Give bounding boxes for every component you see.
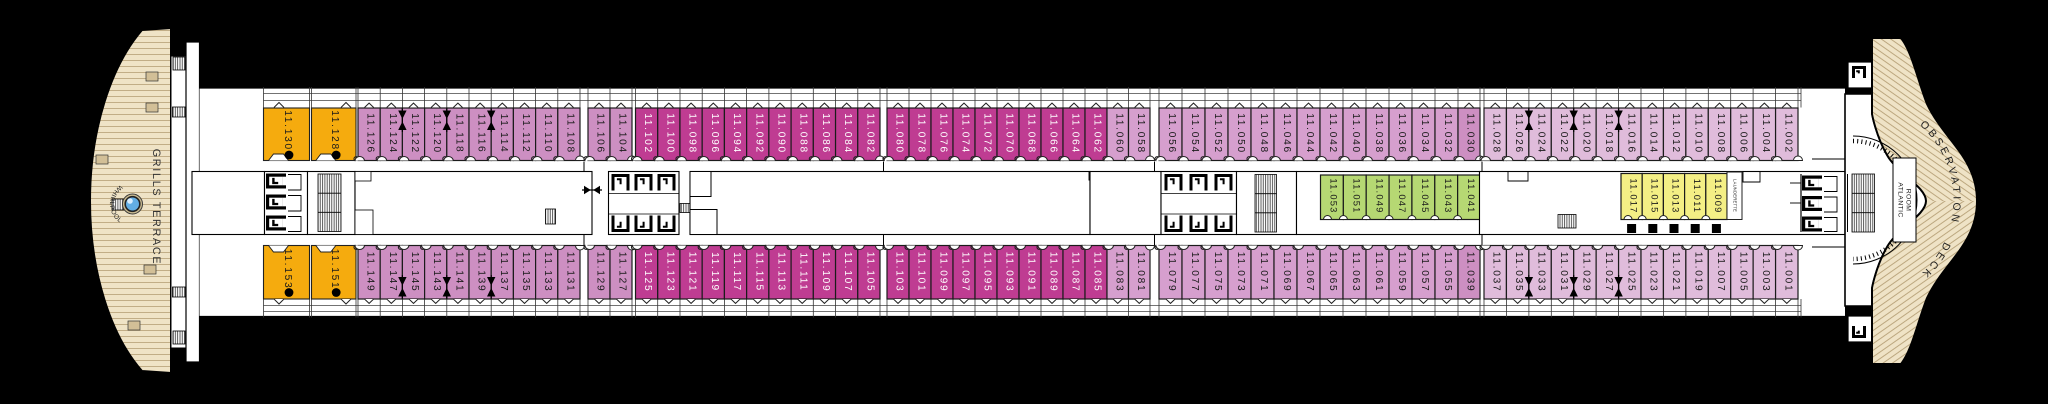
svg-text:11.104: 11.104 [617,113,628,154]
svg-text:11.099: 11.099 [938,252,949,293]
svg-text:11.010: 11.010 [1693,113,1704,154]
svg-text:11.027: 11.027 [1603,252,1614,293]
svg-text:11.056: 11.056 [1166,113,1177,154]
svg-text:11.151: 11.151 [329,249,340,290]
svg-text:11.013: 11.013 [1671,178,1682,213]
svg-text:11.128: 11.128 [329,110,340,151]
svg-text:11.043: 11.043 [1443,178,1454,213]
svg-text:11.017: 11.017 [1628,178,1639,213]
svg-text:11.129: 11.129 [595,252,606,293]
svg-text:11.036: 11.036 [1396,113,1407,154]
svg-text:11.124: 11.124 [387,113,398,154]
svg-text:11.060: 11.060 [1113,113,1124,154]
svg-text:11.123: 11.123 [664,252,675,293]
svg-text:11.020: 11.020 [1580,113,1591,154]
svg-text:11.051: 11.051 [1352,178,1363,213]
svg-text:11.054: 11.054 [1189,113,1200,154]
svg-text:11.119: 11.119 [709,252,720,292]
svg-text:11.046: 11.046 [1281,113,1292,154]
svg-text:11.118: 11.118 [453,114,464,154]
svg-text:11.047: 11.047 [1397,178,1408,213]
svg-text:11.066: 11.066 [1048,113,1059,154]
svg-text:11.103: 11.103 [894,252,905,293]
svg-text:11.127: 11.127 [617,252,628,293]
svg-text:11.110: 11.110 [542,114,553,154]
svg-text:11.088: 11.088 [798,113,809,154]
svg-text:11.032: 11.032 [1442,113,1453,154]
svg-text:11.052: 11.052 [1212,113,1223,154]
svg-text:11.031: 11.031 [1558,252,1569,293]
svg-text:11.005: 11.005 [1737,252,1748,293]
svg-text:11.048: 11.048 [1258,113,1269,154]
svg-text:11.012: 11.012 [1670,113,1681,154]
svg-text:11.064: 11.064 [1070,113,1081,154]
svg-text:11.100: 11.100 [664,113,675,154]
svg-text:11.095: 11.095 [982,252,993,293]
svg-text:11.014: 11.014 [1648,113,1659,154]
svg-text:ATLANTIC: ATLANTIC [1897,182,1904,217]
svg-text:11.091: 11.091 [1026,252,1037,293]
svg-text:11.122: 11.122 [409,113,420,154]
svg-text:11.137: 11.137 [498,252,509,293]
svg-text:11.070: 11.070 [1004,113,1015,154]
svg-text:11.040: 11.040 [1350,113,1361,154]
svg-text:11.102: 11.102 [642,113,653,154]
svg-text:11.085: 11.085 [1092,252,1103,293]
svg-text:11.076: 11.076 [938,113,949,154]
svg-text:11.116: 11.116 [476,114,487,154]
svg-text:11.068: 11.068 [1026,113,1037,154]
svg-text:11.087: 11.087 [1070,252,1081,293]
svg-text:11.126: 11.126 [365,113,376,154]
svg-text:11.112: 11.112 [520,114,531,154]
svg-text:11.072: 11.072 [982,113,993,154]
svg-text:11.081: 11.081 [1135,252,1146,293]
svg-text:11.042: 11.042 [1327,113,1338,154]
svg-text:11.025: 11.025 [1625,252,1636,293]
svg-text:11.062: 11.062 [1092,113,1103,154]
svg-text:11.019: 11.019 [1693,252,1704,293]
svg-text:11.058: 11.058 [1135,113,1146,154]
svg-text:11.015: 11.015 [1650,178,1661,213]
svg-text:11.009: 11.009 [1713,178,1724,213]
svg-text:11.115: 11.115 [753,252,764,292]
svg-text:11.038: 11.038 [1373,113,1384,154]
svg-text:11.030: 11.030 [1465,113,1476,154]
svg-text:11.016: 11.016 [1625,113,1636,154]
svg-text:11.105: 11.105 [864,252,875,293]
svg-text:11.035: 11.035 [1513,252,1524,293]
svg-text:ROOM: ROOM [1905,189,1912,212]
svg-text:11.101: 11.101 [916,252,927,293]
svg-text:11.073: 11.073 [1235,252,1246,293]
svg-text:11.074: 11.074 [960,113,971,154]
svg-text:11.039: 11.039 [1465,252,1476,293]
svg-text:11.049: 11.049 [1374,178,1385,213]
svg-text:11.065: 11.065 [1327,252,1338,293]
svg-text:11.075: 11.075 [1212,252,1223,293]
svg-text:11.080: 11.080 [894,113,905,154]
svg-text:11.057: 11.057 [1419,252,1430,293]
svg-text:11.004: 11.004 [1760,113,1771,154]
svg-text:11.001: 11.001 [1782,252,1793,293]
svg-text:11.011: 11.011 [1692,179,1703,213]
svg-text:11.055: 11.055 [1442,252,1453,293]
svg-text:11.143: 11.143 [431,252,442,293]
svg-text:11.083: 11.083 [1113,252,1124,293]
svg-text:11.003: 11.003 [1760,252,1771,293]
svg-text:11.041: 11.041 [1466,178,1477,213]
svg-text:11.141: 11.141 [453,252,464,293]
svg-text:11.108: 11.108 [564,113,575,154]
svg-text:11.078: 11.078 [916,113,927,154]
svg-text:11.092: 11.092 [753,113,764,154]
svg-text:11.069: 11.069 [1281,252,1292,293]
svg-text:11.063: 11.063 [1350,252,1361,293]
svg-text:11.024: 11.024 [1536,113,1547,154]
svg-text:11.084: 11.084 [842,113,853,154]
svg-text:11.077: 11.077 [1189,252,1200,293]
svg-text:11.113: 11.113 [776,252,787,292]
svg-text:11.106: 11.106 [595,113,606,154]
svg-text:11.026: 11.026 [1513,113,1524,154]
svg-text:11.117: 11.117 [731,252,742,292]
svg-text:11.147: 11.147 [387,252,398,293]
svg-text:11.139: 11.139 [476,252,487,293]
svg-text:11.093: 11.093 [1004,252,1015,293]
svg-text:11.044: 11.044 [1304,113,1315,154]
svg-text:11.007: 11.007 [1715,252,1726,293]
svg-text:GRILLS TERRACE: GRILLS TERRACE [150,149,162,266]
svg-text:11.121: 11.121 [687,252,698,293]
svg-text:11.021: 11.021 [1670,252,1681,293]
svg-text:11.098: 11.098 [687,113,698,154]
svg-text:11.061: 11.061 [1373,252,1384,293]
svg-text:11.033: 11.033 [1536,252,1547,293]
svg-text:11.029: 11.029 [1580,252,1591,293]
svg-text:11.067: 11.067 [1304,252,1315,293]
svg-text:11.050: 11.050 [1235,113,1246,154]
svg-text:11.120: 11.120 [431,113,442,154]
svg-text:11.034: 11.034 [1419,113,1430,154]
svg-text:11.114: 11.114 [498,114,509,154]
svg-text:11.096: 11.096 [709,113,720,154]
svg-text:11.089: 11.089 [1048,252,1059,293]
svg-text:11.008: 11.008 [1715,113,1726,154]
svg-text:11.053: 11.053 [1329,178,1340,213]
svg-text:LAUNDERETTE: LAUNDERETTE [1732,179,1737,212]
svg-text:11.018: 11.018 [1603,113,1614,154]
svg-text:11.023: 11.023 [1648,252,1659,293]
svg-text:11.094: 11.094 [731,113,742,154]
svg-text:11.082: 11.082 [864,113,875,154]
svg-text:11.045: 11.045 [1420,178,1431,213]
svg-text:11.125: 11.125 [642,252,653,293]
svg-text:11.109: 11.109 [820,252,831,293]
svg-text:11.079: 11.079 [1166,252,1177,293]
svg-text:11.111: 11.111 [798,252,809,291]
svg-text:11.002: 11.002 [1782,113,1793,154]
svg-text:11.153: 11.153 [282,249,293,290]
svg-text:11.071: 11.071 [1258,252,1269,293]
svg-text:11.037: 11.037 [1491,252,1502,293]
svg-text:11.028: 11.028 [1491,113,1502,154]
svg-text:11.059: 11.059 [1396,252,1407,293]
svg-text:11.022: 11.022 [1558,113,1569,154]
svg-text:11.130: 11.130 [282,110,293,151]
svg-text:11.135: 11.135 [520,252,531,293]
svg-text:11.006: 11.006 [1737,113,1748,154]
svg-text:11.133: 11.133 [542,252,553,293]
svg-text:11.090: 11.090 [776,113,787,154]
svg-text:11.131: 11.131 [564,252,575,293]
svg-text:11.145: 11.145 [409,252,420,293]
svg-text:11.086: 11.086 [820,113,831,154]
svg-text:11.149: 11.149 [365,252,376,293]
svg-text:11.107: 11.107 [842,252,853,293]
svg-text:11.097: 11.097 [960,252,971,293]
